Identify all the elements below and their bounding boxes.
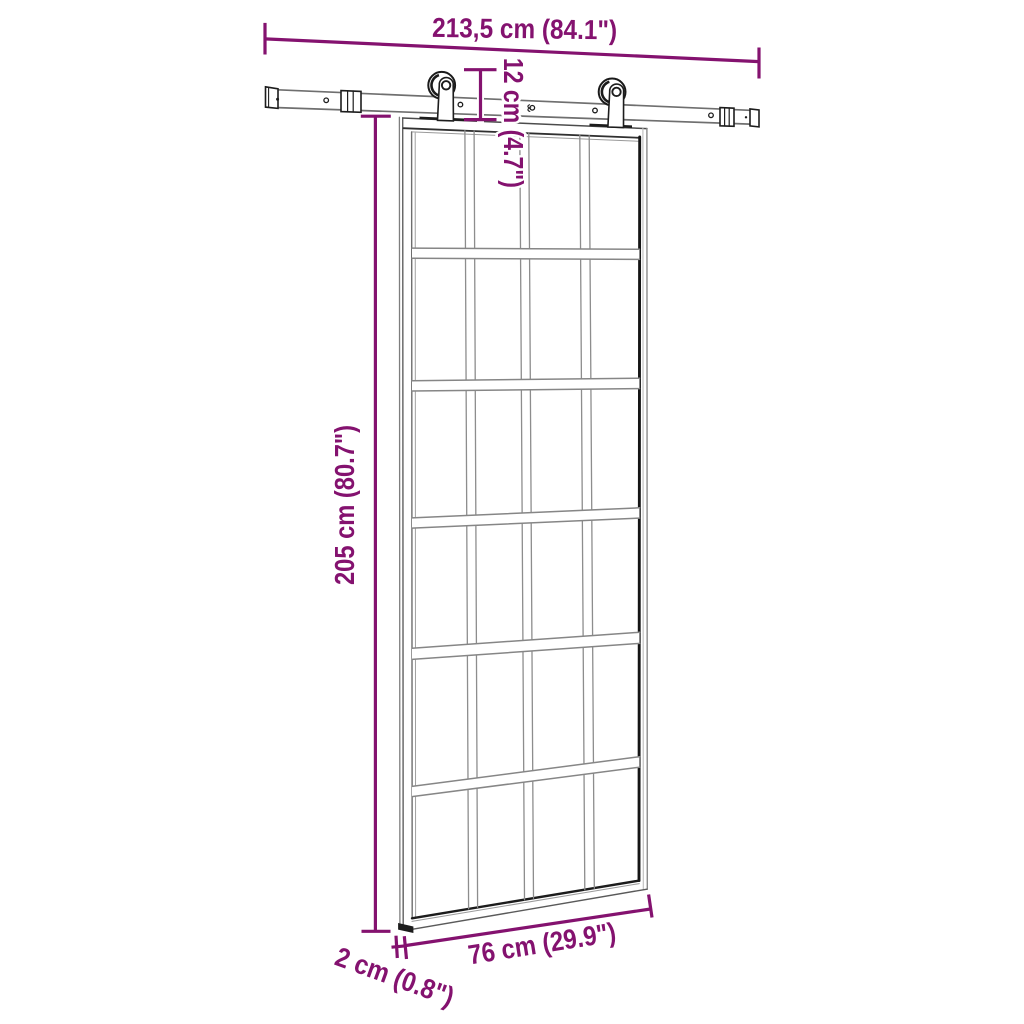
svg-text:213,5 cm (84.1"): 213,5 cm (84.1") [432,12,617,46]
svg-text:12 cm (4.7"): 12 cm (4.7") [498,58,529,188]
svg-text:205 cm (80.7"): 205 cm (80.7") [329,425,360,585]
